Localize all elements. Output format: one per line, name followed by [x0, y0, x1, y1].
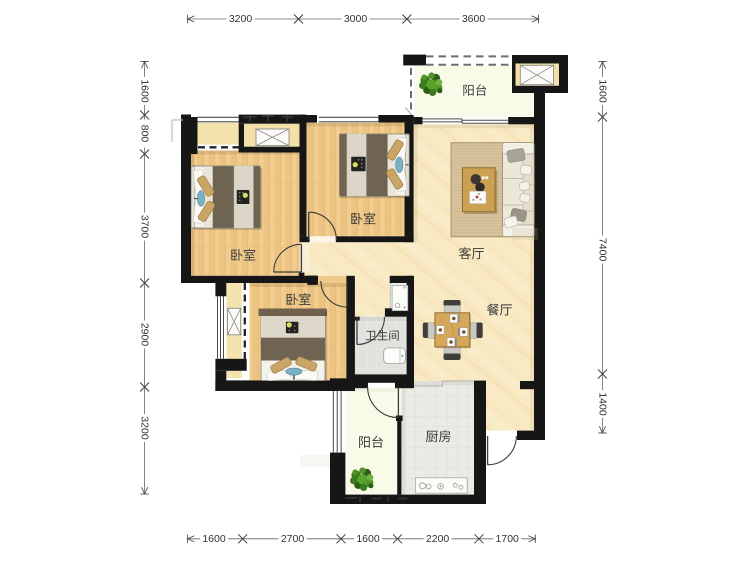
- svg-text:1400: 1400: [597, 392, 609, 416]
- svg-text:2700: 2700: [281, 533, 305, 545]
- svg-text:3200: 3200: [229, 13, 253, 25]
- svg-text:2900: 2900: [139, 323, 151, 347]
- svg-text:3600: 3600: [462, 13, 486, 25]
- svg-text:1600: 1600: [139, 79, 151, 103]
- svg-text:1600: 1600: [356, 533, 380, 545]
- svg-text:1700: 1700: [496, 533, 520, 545]
- svg-text:1600: 1600: [202, 533, 226, 545]
- svg-text:800: 800: [139, 125, 151, 143]
- svg-text:7400: 7400: [597, 238, 609, 262]
- svg-text:2200: 2200: [426, 533, 450, 545]
- svg-text:3200: 3200: [139, 416, 151, 440]
- svg-text:1600: 1600: [597, 79, 609, 103]
- svg-text:3700: 3700: [139, 215, 151, 239]
- svg-text:3000: 3000: [344, 13, 368, 25]
